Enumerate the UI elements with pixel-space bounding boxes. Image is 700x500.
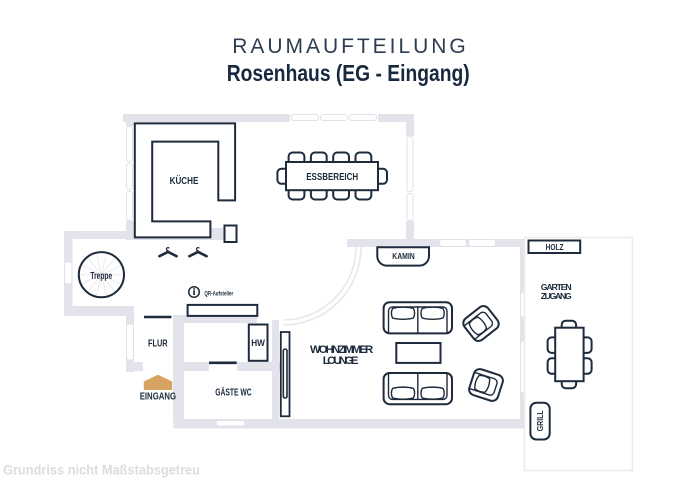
svg-text:Rosenhaus (EG - Eingang): Rosenhaus (EG - Eingang) [227,60,470,86]
svg-text:GÄSTE WC: GÄSTE WC [215,388,251,399]
svg-text:KAMIN: KAMIN [392,252,415,261]
svg-text:GRILL: GRILL [536,410,545,431]
svg-text:HOLZ: HOLZ [546,243,564,252]
svg-text:KÜCHE: KÜCHE [170,176,199,187]
svg-text:Grundriss nicht Maßstabsgetreu: Grundriss nicht Maßstabsgetreu [3,463,200,478]
svg-text:HW: HW [251,338,265,348]
svg-text:FLUR: FLUR [148,339,168,350]
svg-text:ESSBEREICH: ESSBEREICH [306,172,358,183]
svg-text:EINGANG: EINGANG [140,391,176,402]
svg-text:QR-Aufsteller: QR-Aufsteller [204,291,233,298]
svg-text:LOUNGE: LOUNGE [323,355,359,367]
svg-text:Treppe: Treppe [90,271,112,282]
svg-text:ZUGANG: ZUGANG [541,291,572,301]
svg-text:RAUMAUFTEILUNG: RAUMAUFTEILUNG [232,35,466,58]
